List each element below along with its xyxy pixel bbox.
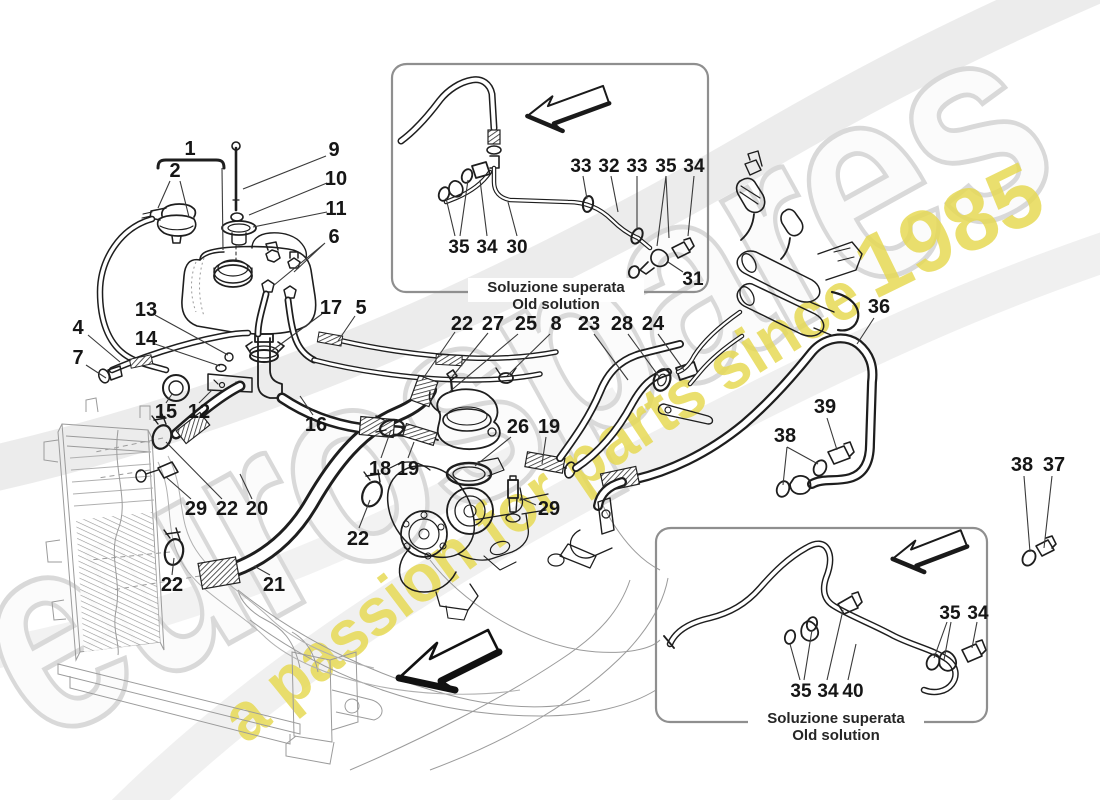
svg-text:Soluzione superata: Soluzione superata [487,279,625,296]
svg-text:5: 5 [355,297,366,319]
svg-text:Old solution: Old solution [792,727,880,744]
svg-text:22: 22 [161,574,183,596]
svg-text:4: 4 [72,317,84,339]
svg-text:12: 12 [188,401,210,423]
svg-text:14: 14 [135,328,158,350]
svg-text:38: 38 [774,425,796,447]
svg-text:40: 40 [842,681,863,702]
svg-text:19: 19 [397,458,419,480]
svg-text:16: 16 [305,414,327,436]
svg-text:13: 13 [135,299,157,321]
svg-text:35: 35 [790,681,812,702]
svg-text:34: 34 [476,237,498,258]
svg-text:29: 29 [538,498,560,520]
svg-text:37: 37 [1043,454,1065,476]
svg-text:27: 27 [482,313,504,335]
svg-text:34: 34 [683,156,705,177]
svg-text:8: 8 [550,313,561,335]
svg-text:Soluzione superata: Soluzione superata [767,710,905,727]
svg-text:33: 33 [626,156,647,177]
svg-text:10: 10 [325,168,347,190]
svg-text:34: 34 [967,603,989,624]
svg-text:6: 6 [328,226,339,248]
svg-text:36: 36 [868,296,890,318]
svg-text:Old solution: Old solution [512,296,600,313]
svg-text:18: 18 [369,458,391,480]
svg-text:32: 32 [598,156,619,177]
svg-text:34: 34 [817,681,839,702]
svg-text:19: 19 [538,416,560,438]
svg-text:35: 35 [655,156,677,177]
svg-text:22: 22 [216,498,238,520]
svg-text:22: 22 [451,313,473,335]
svg-text:28: 28 [611,313,633,335]
svg-text:33: 33 [570,156,591,177]
svg-text:1: 1 [184,138,195,160]
svg-text:31: 31 [682,269,704,290]
svg-text:30: 30 [506,237,527,258]
svg-text:35: 35 [448,237,470,258]
svg-text:17: 17 [320,297,342,319]
svg-text:25: 25 [515,313,537,335]
svg-text:20: 20 [246,498,268,520]
svg-text:21: 21 [263,574,285,596]
svg-text:11: 11 [325,198,346,220]
svg-text:38: 38 [1011,454,1033,476]
svg-text:26: 26 [507,416,529,438]
svg-text:22: 22 [347,528,369,550]
svg-text:7: 7 [72,347,83,369]
svg-text:23: 23 [578,313,600,335]
svg-text:39: 39 [814,396,836,418]
svg-text:15: 15 [155,401,177,423]
svg-text:9: 9 [328,139,339,161]
svg-text:29: 29 [185,498,207,520]
svg-text:2: 2 [169,160,180,182]
svg-text:24: 24 [642,313,665,335]
svg-text:35: 35 [939,603,961,624]
